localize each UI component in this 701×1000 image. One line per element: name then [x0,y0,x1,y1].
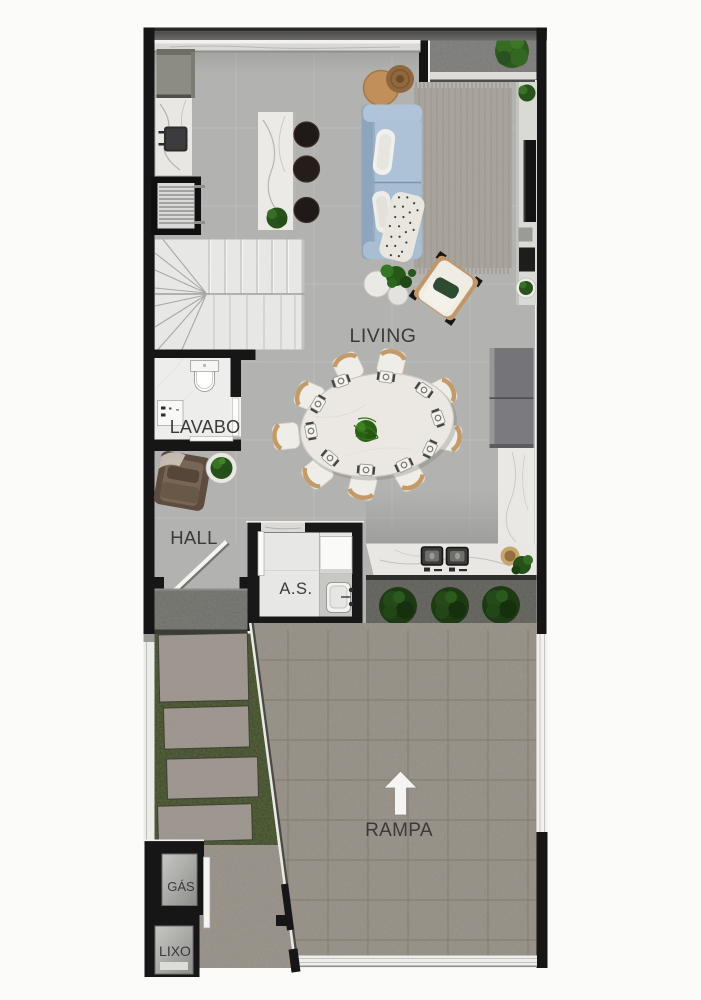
svg-text:LAVABO: LAVABO [170,417,241,437]
svg-text:HALL: HALL [170,527,217,548]
svg-text:LIVING: LIVING [350,325,417,347]
svg-text:RAMPA: RAMPA [365,820,433,841]
svg-text:GÁS: GÁS [167,879,195,894]
svg-text:A.S.: A.S. [279,580,312,598]
svg-text:LIXO: LIXO [159,943,191,959]
